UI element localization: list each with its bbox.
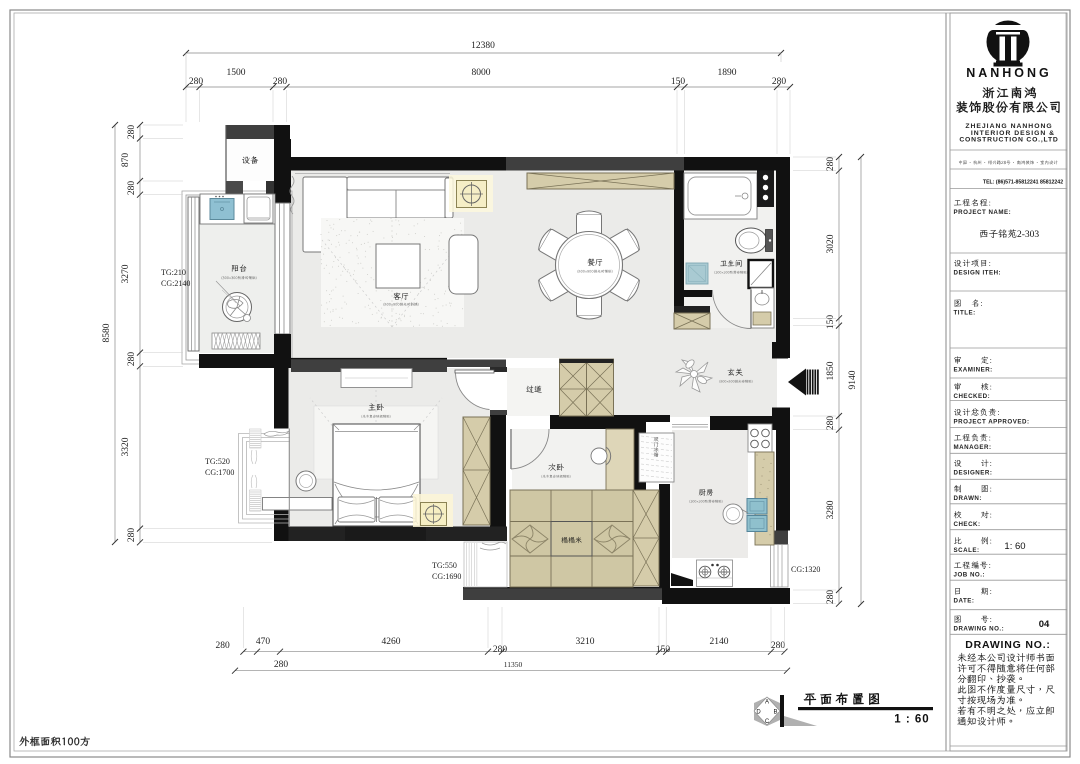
svg-text:280: 280 — [127, 352, 137, 367]
svg-text:1 : 60: 1 : 60 — [894, 714, 929, 726]
svg-text:DATE:: DATE: — [954, 598, 975, 605]
svg-text:3210: 3210 — [576, 637, 595, 647]
svg-text:SCALE:: SCALE: — [954, 547, 980, 554]
svg-text:PROJECT APPROVED:: PROJECT APPROVED: — [954, 419, 1030, 426]
svg-text:280: 280 — [273, 77, 288, 87]
svg-text:NANHONG: NANHONG — [966, 66, 1052, 80]
svg-text:TG:210: TG:210 — [161, 268, 186, 277]
svg-text:12380: 12380 — [471, 41, 495, 51]
svg-text:CHECK:: CHECK: — [954, 521, 981, 528]
svg-text:A: A — [765, 700, 769, 706]
svg-text:DESIGN ITEH:: DESIGN ITEH: — [954, 270, 1002, 277]
svg-text:11350: 11350 — [504, 660, 523, 669]
svg-text:150: 150 — [826, 315, 836, 330]
svg-text:9140: 9140 — [848, 370, 858, 389]
svg-text:PROJECT NAME:: PROJECT NAME: — [954, 209, 1012, 216]
svg-text:CONSTRUCTION CO.,LTD: CONSTRUCTION CO.,LTD — [959, 137, 1058, 144]
svg-text:2140: 2140 — [710, 637, 729, 647]
svg-text:8580: 8580 — [102, 323, 112, 342]
svg-text:150: 150 — [671, 77, 686, 87]
svg-text:280: 280 — [127, 528, 137, 543]
svg-text:04: 04 — [1039, 619, 1050, 630]
svg-text:280: 280 — [772, 77, 787, 87]
svg-text:CG:1320: CG:1320 — [791, 565, 820, 574]
svg-text:CHECKED:: CHECKED: — [954, 393, 991, 400]
svg-text:2-303: 2-303 — [1017, 230, 1039, 240]
svg-text:3270: 3270 — [121, 264, 131, 283]
svg-text:280: 280 — [826, 416, 836, 431]
svg-text:870: 870 — [121, 153, 131, 168]
svg-text:DRAWN:: DRAWN: — [954, 495, 982, 502]
svg-text:280: 280 — [826, 590, 836, 605]
svg-text:470: 470 — [256, 637, 271, 647]
svg-text:DRAWING NO.:: DRAWING NO.: — [965, 639, 1050, 651]
svg-text:DESIGNER:: DESIGNER: — [954, 470, 993, 477]
svg-text:TEL: (86)571-85812241 85812242: TEL: (86)571-85812241 85812242 — [983, 180, 1063, 186]
svg-text:8000: 8000 — [472, 68, 491, 78]
svg-text:C: C — [765, 719, 770, 725]
svg-text:CG:2140: CG:2140 — [161, 279, 190, 288]
svg-text:3280: 3280 — [826, 500, 836, 519]
svg-text:MANAGER:: MANAGER: — [954, 444, 992, 451]
svg-text:3020: 3020 — [826, 234, 836, 253]
svg-text:JOB NO.:: JOB NO.: — [954, 572, 986, 579]
svg-text:280: 280 — [215, 641, 230, 651]
svg-text:280: 280 — [493, 645, 508, 655]
svg-text:CG:1700: CG:1700 — [205, 468, 234, 477]
svg-text:3320: 3320 — [121, 437, 131, 456]
svg-text:150: 150 — [656, 645, 671, 655]
svg-text:1890: 1890 — [718, 68, 737, 78]
svg-text:280: 280 — [189, 77, 204, 87]
svg-text:TG:520: TG:520 — [205, 457, 230, 466]
svg-text:280: 280 — [771, 641, 786, 651]
svg-text:4260: 4260 — [382, 637, 401, 647]
svg-text:DRAWING NO.:: DRAWING NO.: — [954, 626, 1005, 633]
svg-text:280: 280 — [127, 181, 137, 196]
svg-text:D: D — [756, 710, 761, 716]
svg-text:1: 60: 1: 60 — [1004, 541, 1025, 552]
svg-text:B: B — [773, 710, 777, 716]
svg-text:EXAMINER:: EXAMINER: — [954, 367, 993, 374]
svg-text:CG:1690: CG:1690 — [432, 572, 461, 581]
svg-text:TITLE:: TITLE: — [954, 310, 976, 317]
svg-text:1850: 1850 — [826, 361, 836, 380]
svg-text:TG:550: TG:550 — [432, 561, 457, 570]
svg-text:1500: 1500 — [227, 68, 246, 78]
svg-text:280: 280 — [127, 125, 137, 140]
svg-text:280: 280 — [826, 157, 836, 172]
svg-text:280: 280 — [274, 660, 289, 670]
